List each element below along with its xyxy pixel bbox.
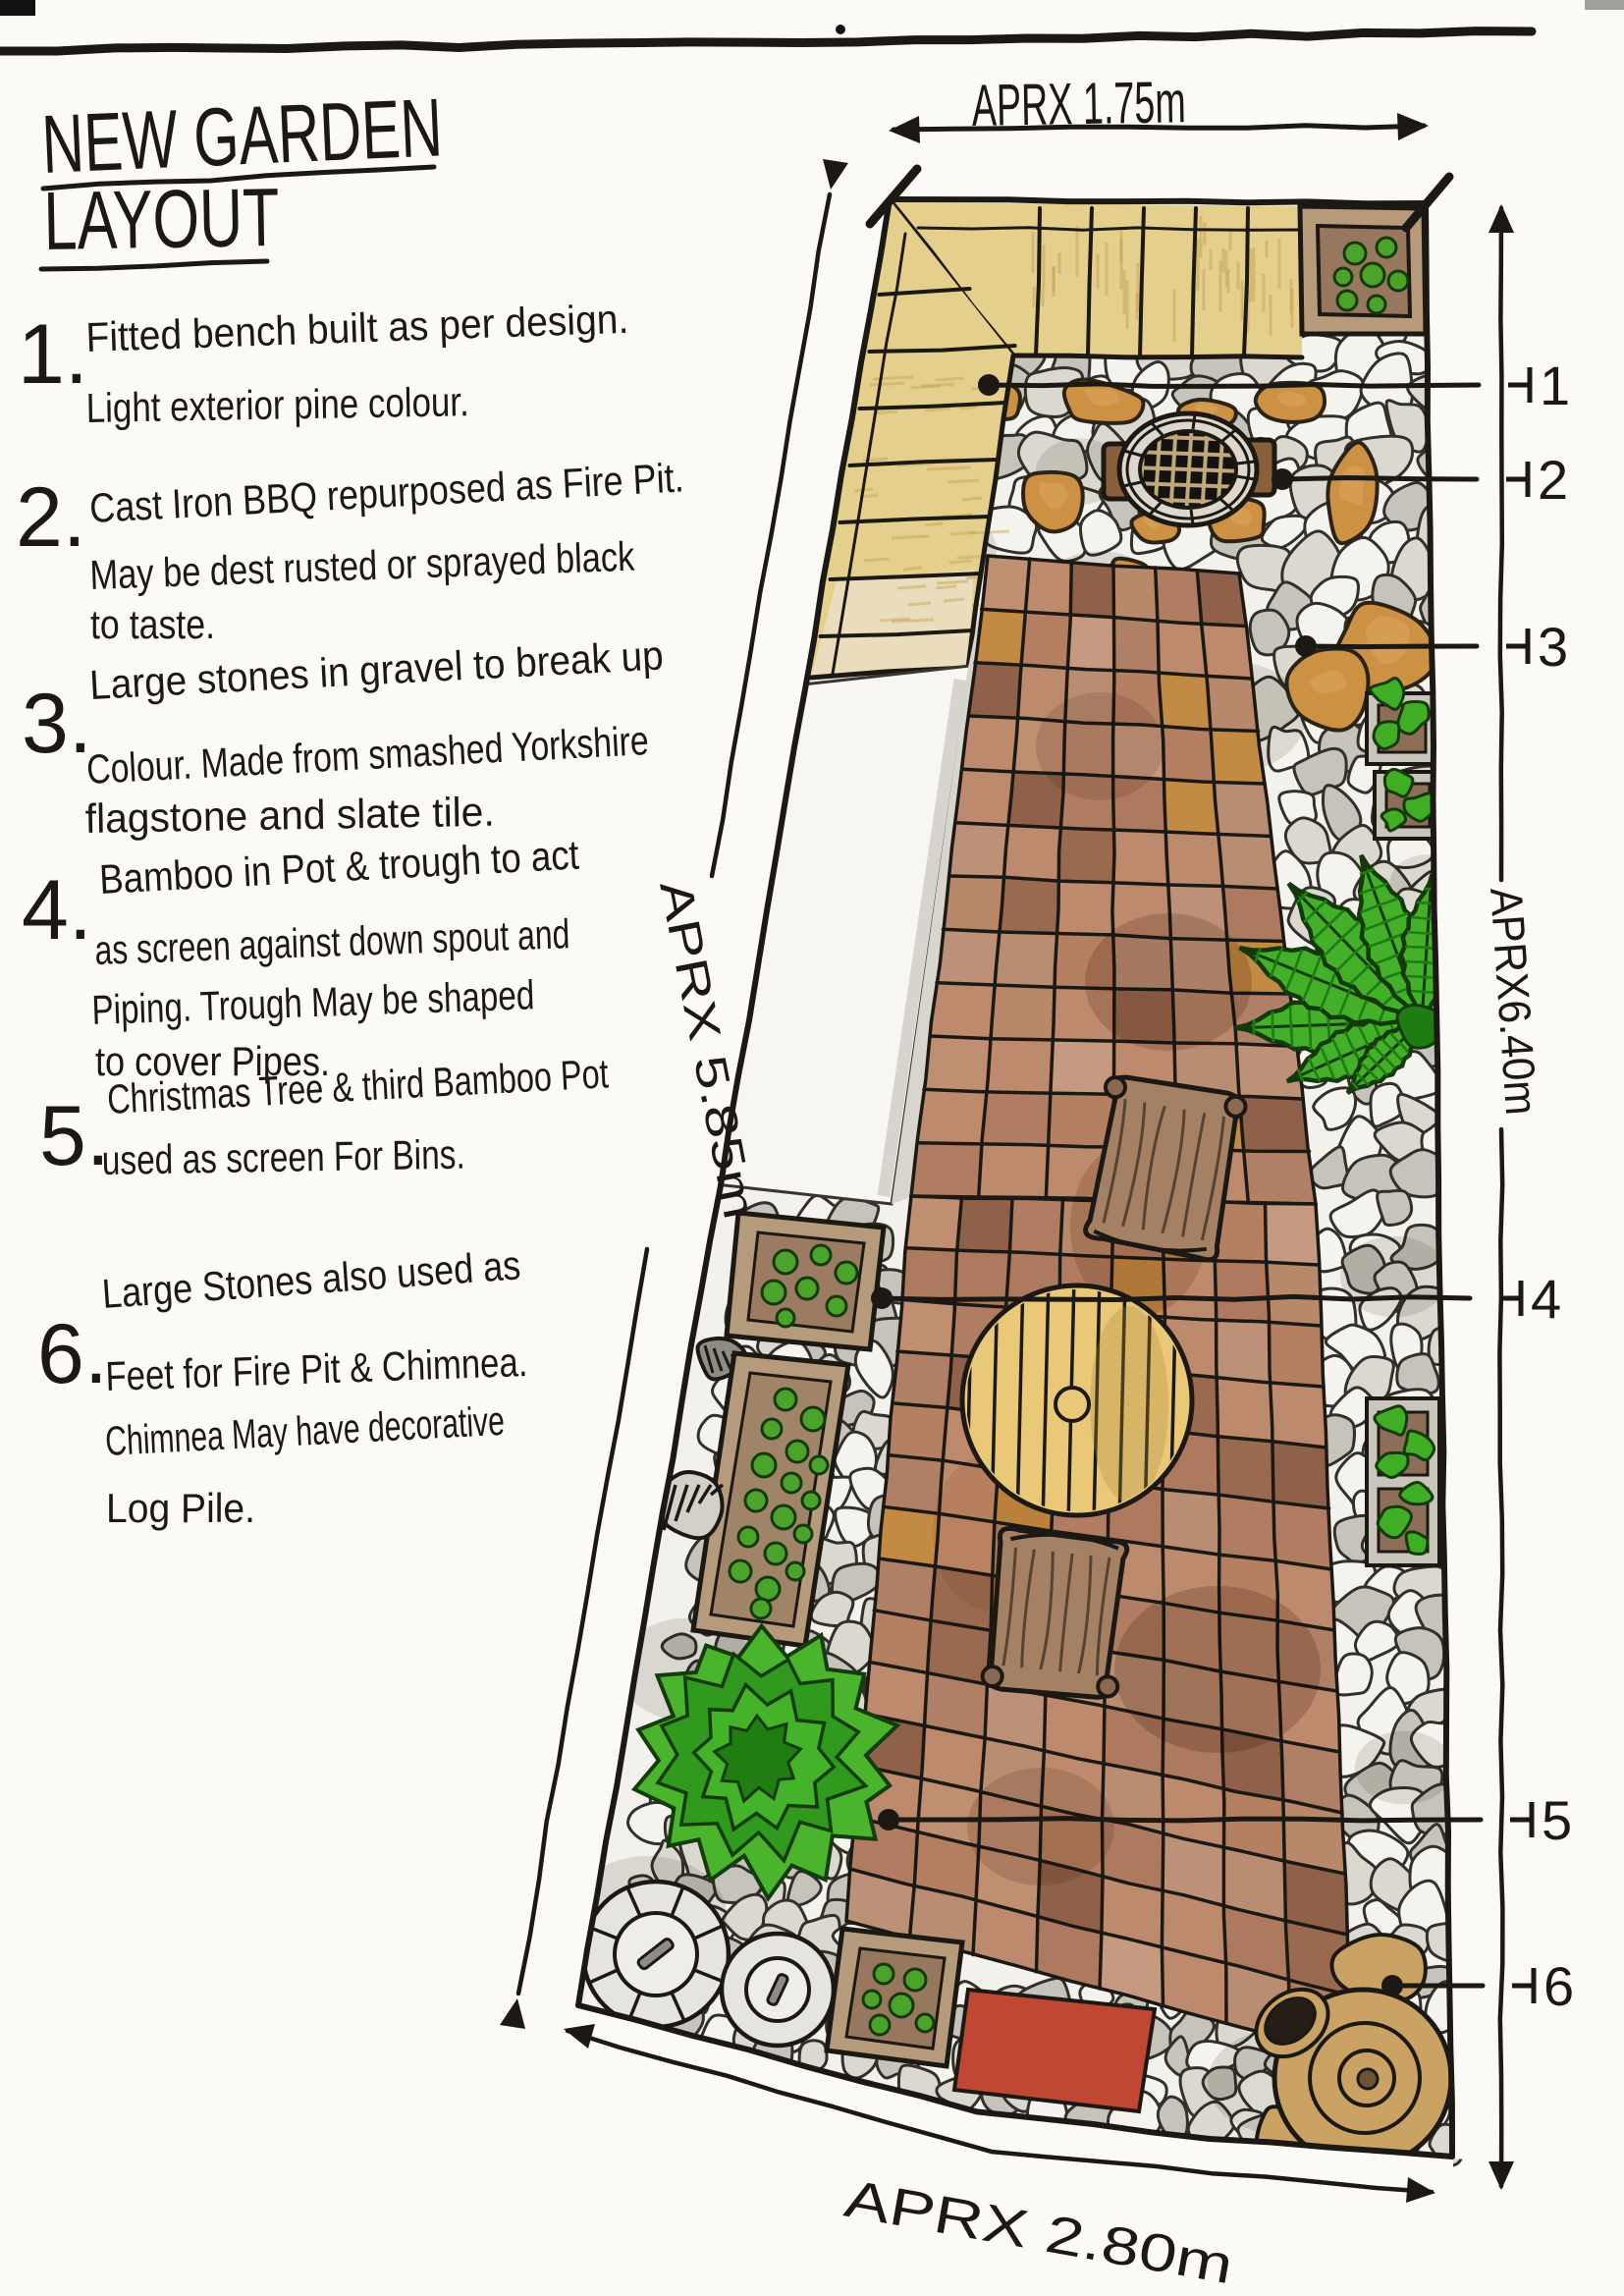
- svg-text:2: 2: [1538, 449, 1568, 511]
- svg-text:1.: 1.: [18, 307, 88, 402]
- svg-text:Light exterior pine colour.: Light exterior pine colour.: [85, 378, 469, 431]
- svg-text:Log Pile.: Log Pile.: [106, 1485, 255, 1531]
- svg-text:2.: 2.: [16, 470, 86, 565]
- svg-text:to taste.: to taste.: [90, 601, 215, 647]
- svg-text:5.: 5.: [39, 1089, 110, 1183]
- svg-text:flagstone and slate tile.: flagstone and slate tile.: [84, 789, 495, 842]
- svg-text:4.: 4.: [22, 863, 92, 957]
- svg-text:6.: 6.: [37, 1307, 108, 1401]
- svg-text:LAYOUT: LAYOUT: [43, 171, 281, 267]
- svg-text:4: 4: [1531, 1268, 1561, 1330]
- svg-text:1: 1: [1540, 355, 1570, 416]
- svg-text:APRX 1.75m: APRX 1.75m: [971, 69, 1186, 138]
- svg-text:5: 5: [1542, 1789, 1572, 1851]
- svg-text:6: 6: [1543, 1955, 1574, 2017]
- svg-text:3: 3: [1538, 616, 1568, 678]
- svg-text:3.: 3.: [22, 677, 92, 771]
- svg-text:used as screen For Bins.: used as screen For Bins.: [101, 1131, 465, 1183]
